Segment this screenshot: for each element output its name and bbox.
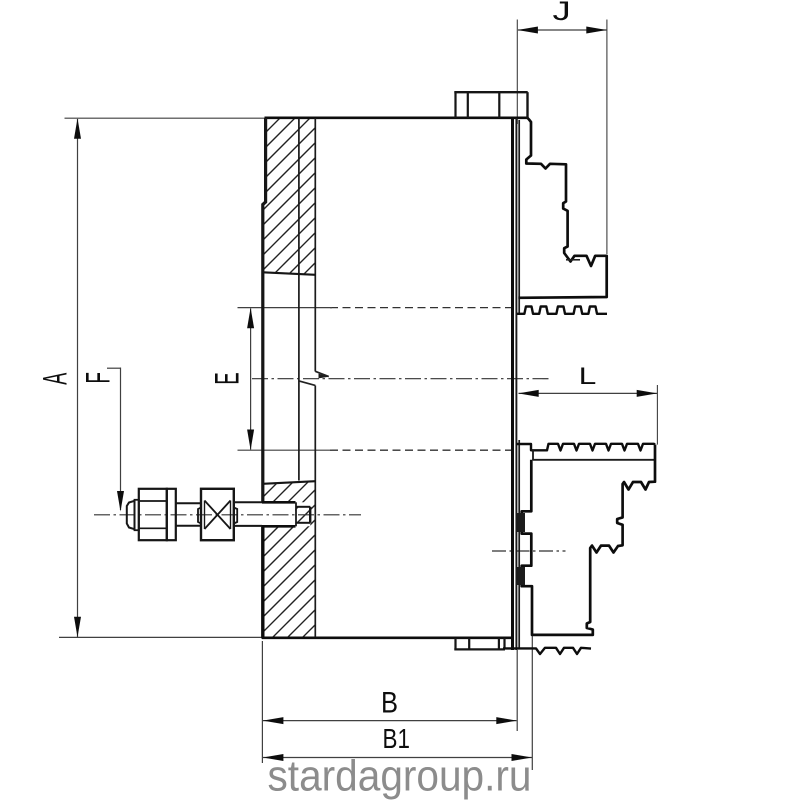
svg-text:stardagroup.ru: stardagroup.ru bbox=[268, 753, 532, 800]
svg-text:L: L bbox=[579, 362, 597, 390]
svg-text:F: F bbox=[79, 372, 117, 383]
svg-text:J: J bbox=[552, 0, 570, 26]
svg-text:A: A bbox=[35, 372, 74, 385]
svg-text:B: B bbox=[381, 686, 398, 719]
svg-text:B1: B1 bbox=[383, 724, 410, 755]
svg-text:E: E bbox=[208, 372, 247, 384]
